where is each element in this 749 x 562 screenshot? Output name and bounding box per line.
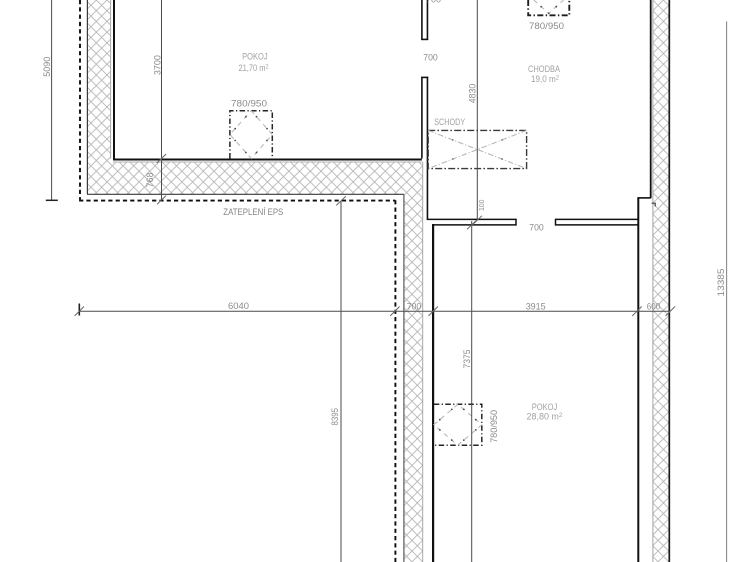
svg-text:7375: 7375 xyxy=(462,350,472,369)
svg-text:21,70 m2: 21,70 m2 xyxy=(239,63,269,73)
svg-text:780/950: 780/950 xyxy=(231,99,267,109)
svg-text:6040: 6040 xyxy=(228,301,249,311)
svg-text:700: 700 xyxy=(426,0,441,5)
svg-text:780/950: 780/950 xyxy=(529,21,564,31)
svg-text:700: 700 xyxy=(407,302,422,312)
svg-text:ZATEPLENÍ EPS: ZATEPLENÍ EPS xyxy=(223,207,283,217)
svg-text:4830: 4830 xyxy=(468,84,478,104)
svg-text:19,0 m2: 19,0 m2 xyxy=(531,74,559,84)
svg-text:28,80 m2: 28,80 m2 xyxy=(527,411,563,421)
svg-text:768: 768 xyxy=(145,172,155,187)
svg-text:700: 700 xyxy=(529,222,544,232)
svg-text:100: 100 xyxy=(479,199,486,211)
svg-text:5090: 5090 xyxy=(42,57,52,77)
svg-text:780/950: 780/950 xyxy=(489,410,499,443)
svg-text:13385: 13385 xyxy=(716,269,727,297)
svg-text:CHODBA: CHODBA xyxy=(528,64,560,74)
svg-text:POKOJ: POKOJ xyxy=(532,402,558,412)
svg-text:3700: 3700 xyxy=(152,55,162,75)
svg-text:SCHODY: SCHODY xyxy=(434,117,465,127)
svg-text:POKOJ: POKOJ xyxy=(242,52,268,62)
svg-text:8395: 8395 xyxy=(330,408,340,426)
svg-text:600: 600 xyxy=(647,302,661,312)
svg-text:700: 700 xyxy=(423,53,438,63)
svg-text:3915: 3915 xyxy=(526,302,546,312)
